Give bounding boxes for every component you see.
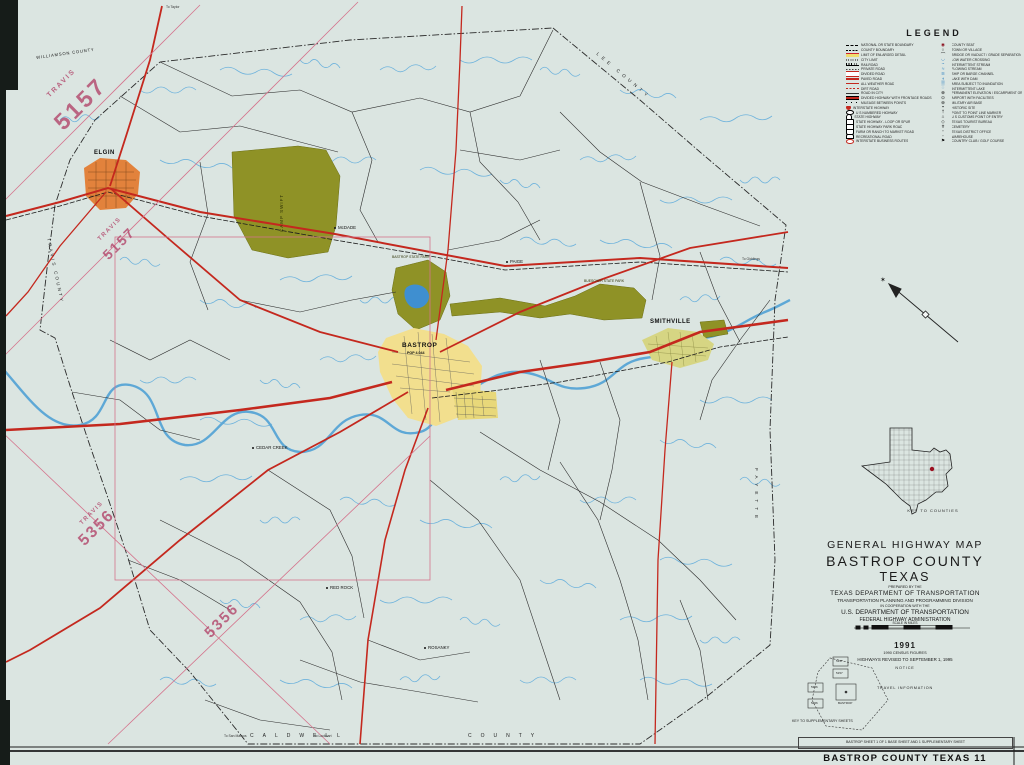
cityrd-symbol [846,93,859,94]
scale-bar [854,626,970,630]
legend-item-label: INTERSTATE BUSINESS ROUTES [856,139,908,143]
buescher-park-corridor [450,284,646,320]
census-line: 1990 CENSUS FIGURES [790,651,1020,655]
legend-item-label: HISTORIC SITE [952,106,976,110]
camp-swift-area [232,146,340,258]
paved-symbol [846,78,859,80]
legend-item-label: RECREATIONAL ROAD [856,135,892,139]
legend-item-label: INTERMITTENT LAKE [952,87,985,91]
usdot-line: U.S. DEPARTMENT OF TRANSPORTATION [790,609,1020,616]
map-title-line: GENERAL HIGHWAY MAP [790,539,1020,551]
fm-elgin-southwest [6,192,106,316]
travel-heading: TRAVEL INFORMATION [790,686,1020,690]
legend-item-label: PERMANENT ELEVATION / ESCARPMENT OR BLUF… [952,91,1023,95]
frontage-symbol [846,96,859,100]
legend-item-label: DIRT ROAD [861,87,879,91]
legend-item-label: AREA SUBJECT TO INUNDATION [952,82,1003,86]
elgin-city-area [84,158,140,210]
fm-smithville-south [655,362,672,744]
legend-item-label: STATE HIGHWAY [854,115,880,119]
priv-symbol [846,69,859,70]
map-sheet: ✶ [0,0,1024,765]
legend-item-label: POINT TO POINT LINE MARKER [952,111,1002,115]
cnty-symbol [846,50,859,51]
legend-item-label: TOWN OR VILLAGE [952,48,983,52]
legend-item-label: AIRPORT WITH FACILITIES [952,96,994,100]
north-arrow: ✶ [880,276,958,342]
notice-heading: NOTICE [790,666,1020,670]
legend-item-label: CEMETERY [952,125,970,129]
legend-item-label: STATE HIGHWAY - LOOP OR SPUR [856,120,910,124]
scan-edge-left [0,0,6,765]
sh71-east [446,320,788,390]
mileage-symbol [846,102,859,103]
park-areas [232,146,728,338]
sh21-southwest [6,392,408,662]
key-to-sheets-caption: KEY TO SUPPLEMENTARY SHEETS [792,719,882,723]
sh95-north [110,6,162,186]
legend-item-label: PRIVATE ROAD [861,67,885,71]
legend-item-label: WAREHOUSE [952,135,974,139]
legend-item-label: FLOWING STREAM [952,67,982,71]
legend-item-label: COUNTY SEAT [952,43,975,47]
legend-item-label: INTERMITTENT STREAM [952,63,991,67]
scan-edge-corner-tl [0,0,18,90]
legend-item-label: LIMIT OF ENLARGED DETAIL [861,53,906,57]
legend-item: DIVIDED HIGHWAY WITH FRONTAGE ROADS [846,96,932,101]
rail-symbol [846,63,859,67]
legend-item-label: BRIDGE OR VIADUCT / GRADE SEPARATION [952,53,1022,57]
sh71-west [6,382,392,430]
year-line: 1991 [790,641,1020,650]
state-title: TEXAS [790,570,1020,584]
legend-item-label: DIVIDED ROAD [861,72,885,76]
legend-item-label: INTERSTATE HIGHWAY [853,106,889,110]
division-line: TRANSPORTATION PLANNING AND PROGRAMMING … [790,598,1020,603]
legend-item-label: DIVIDED HIGHWAY WITH FRONTAGE ROADS [861,96,932,100]
sheet-note: BASTROP SHEET 1 OF 1 BASE SHEET AND 1 SU… [798,737,1013,749]
legend-item-label: PAVED ROAD [861,77,882,81]
key-to-counties-caption: KEY TO COUNTIES [858,508,1008,513]
golf-symbol: ⚑ [937,140,950,143]
legend-item-label: MILITARY AIR BASE [952,101,983,105]
citylim-symbol [846,59,859,61]
limit-symbol [846,53,859,57]
svg-text:✶: ✶ [880,276,886,284]
cooperation-line: IN COOPERATION WITH THE [790,604,1020,608]
prepared-by: PREPARED BY THE [790,585,1020,589]
legend-item-label: RAILROAD [861,63,878,67]
legend-item-label: ALL WEATHER ROAD [861,82,894,86]
legend-item: ⚑COUNTRY CLUB / GOLF COURSE [937,139,1023,144]
legend: LEGEND NATIONAL OR STATE BOUNDARYCOUNTY … [846,28,1022,144]
legend-column-left: NATIONAL OR STATE BOUNDARYCOUNTY BOUNDAR… [846,43,932,144]
dirt-symbol [846,88,859,89]
legend-item-label: STATE HIGHWAY PARK ROAD [856,125,902,129]
legend-item-label: FARM OR RANCH TO MARKET ROAD [856,130,914,134]
legend-item-label: TEXAS TOURIST BUREAU [952,120,993,124]
legend-item-label: COUNTRY CLUB / GOLF COURSE [952,139,1005,143]
legend-item-label: LOW WATER CROSSING [952,58,990,62]
legend-item-label: U S CUSTOMS POINT OF ENTRY [952,115,1003,119]
county-title: BASTROP COUNTY [790,553,1020,569]
bottom-sheet-title: BASTROP COUNTY TEXAS 11 [790,753,1020,764]
legend-item-label: SHIP OR BARGE CHANNEL [952,72,995,76]
scale-label: SCALE IN MILES [790,621,1020,625]
legend-item-label: CITY LIMIT [861,58,878,62]
legend-title: LEGEND [846,28,1022,38]
allw-symbol [846,83,859,84]
revised-line: HIGHWAYS REVISED TO SEPTEMBER 1, 1995 [790,657,1020,662]
legend-item-label: TEXAS DISTRICT OFFICE [952,130,992,134]
legend-item-label: MILEAGE BETWEEN POINTS [861,101,906,105]
sh304-south [360,408,428,744]
texas-key-map [860,426,956,518]
legend-item-label: NATIONAL OR STATE BOUNDARY [861,43,914,47]
txdot-line: TEXAS DEPARTMENT OF TRANSPORTATION [790,590,1020,597]
scan-edge-corner-bl [0,700,10,765]
divided-symbol [846,71,859,76]
legend-column-right: ◉COUNTY SEAT○TOWN OR VILLAGE⌒BRIDGE OR V… [937,43,1023,144]
bastrop-location-dot [930,467,934,471]
legend-item-label: ROAD IN CITY [861,91,883,95]
bnd-symbol [846,45,859,47]
legend-item-label: U S NUMBERED HIGHWAY [856,111,898,115]
sh-bus-symbol [846,139,854,145]
legend-item: INTERSTATE BUSINESS ROUTES [846,139,932,144]
legend-item-label: LAKE WITH DAM [952,77,978,81]
legend-item-label: COUNTY BOUNDARY [861,48,894,52]
